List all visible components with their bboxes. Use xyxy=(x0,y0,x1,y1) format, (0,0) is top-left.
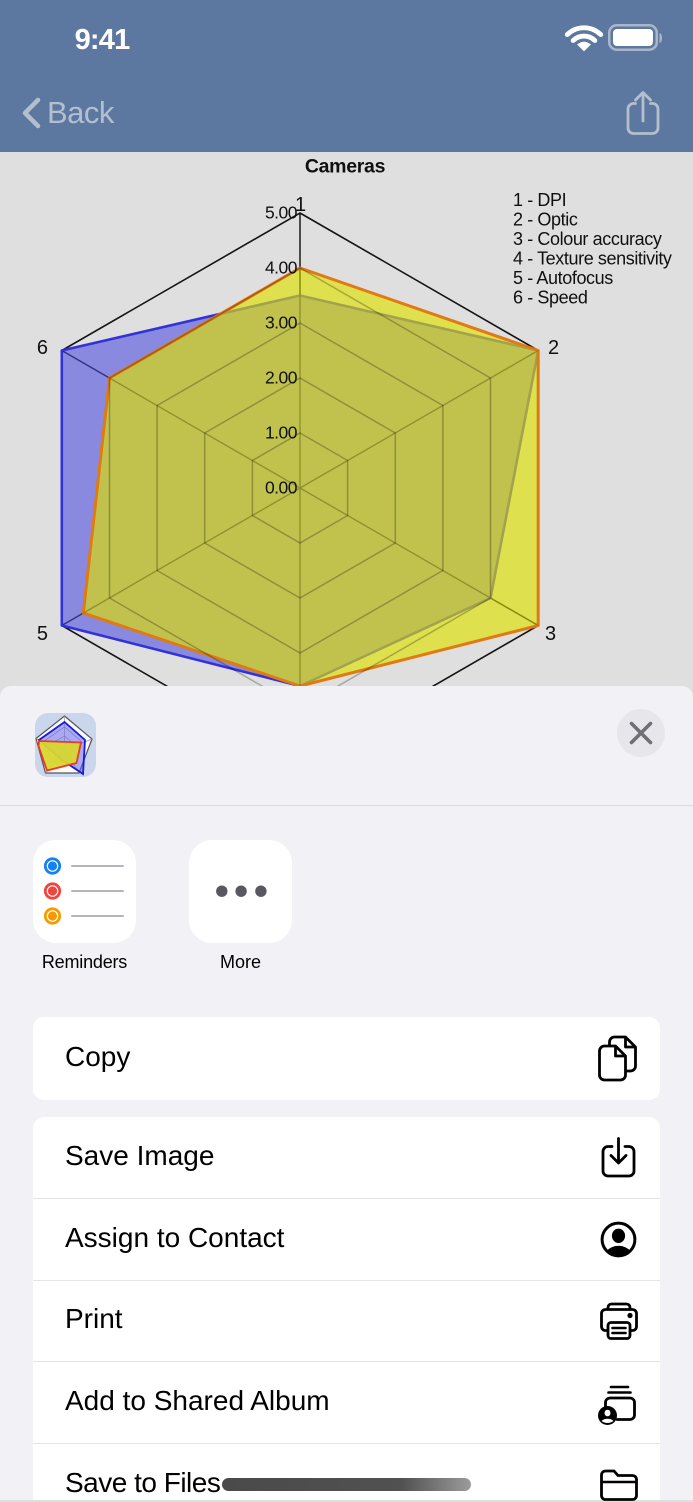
svg-text:1.00: 1.00 xyxy=(265,423,298,443)
svg-text:2.00: 2.00 xyxy=(265,368,298,388)
svg-text:3 - Colour accuracy: 3 - Colour accuracy xyxy=(513,229,662,249)
svg-text:1 - DPI: 1 - DPI xyxy=(513,190,566,210)
svg-text:3.00: 3.00 xyxy=(265,313,298,333)
svg-text:5 - Autofocus: 5 - Autofocus xyxy=(513,268,613,288)
svg-text:5: 5 xyxy=(37,623,48,645)
svg-text:4 - Texture sensitivity: 4 - Texture sensitivity xyxy=(513,249,672,269)
svg-text:2 - Optic: 2 - Optic xyxy=(513,210,578,230)
svg-text:Cameras: Cameras xyxy=(305,156,386,178)
svg-text:3: 3 xyxy=(545,623,556,645)
svg-text:0.00: 0.00 xyxy=(265,478,298,498)
svg-text:4.00: 4.00 xyxy=(265,258,298,278)
svg-text:2: 2 xyxy=(548,337,559,359)
svg-text:6 - Speed: 6 - Speed xyxy=(513,288,587,308)
svg-text:5.00: 5.00 xyxy=(265,203,298,223)
svg-text:6: 6 xyxy=(37,337,48,359)
